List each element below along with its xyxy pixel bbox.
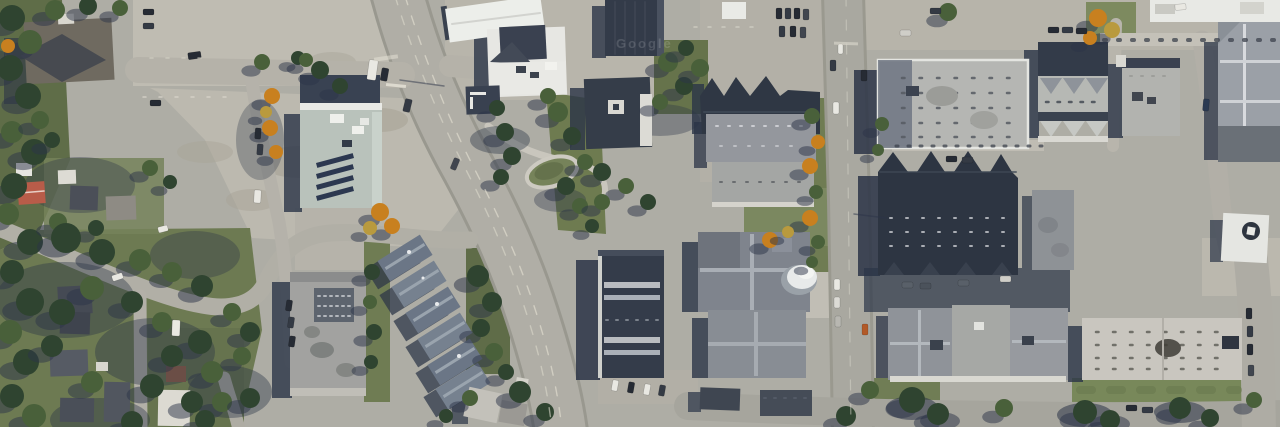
building-roof bbox=[952, 305, 1010, 379]
building-roof bbox=[970, 111, 998, 129]
tree bbox=[498, 364, 514, 380]
tree bbox=[482, 292, 502, 312]
tree bbox=[540, 88, 556, 104]
vehicle bbox=[143, 9, 154, 15]
tree bbox=[129, 249, 151, 271]
building-roof bbox=[878, 60, 912, 148]
tree bbox=[371, 203, 389, 221]
tree bbox=[0, 260, 24, 284]
tree bbox=[188, 330, 212, 354]
tree bbox=[485, 343, 503, 361]
tree bbox=[269, 145, 283, 159]
vehicle bbox=[962, 157, 973, 163]
tree bbox=[1246, 392, 1262, 408]
tree bbox=[652, 94, 668, 110]
vehicle bbox=[1246, 308, 1252, 319]
vehicle bbox=[946, 156, 957, 162]
tree bbox=[223, 303, 241, 321]
tree bbox=[1169, 397, 1191, 419]
tree bbox=[811, 135, 825, 149]
tree bbox=[163, 175, 177, 189]
tree bbox=[593, 163, 611, 181]
tree bbox=[311, 61, 329, 79]
vehicle bbox=[833, 102, 839, 114]
vehicle bbox=[150, 100, 161, 106]
west-side-street bbox=[138, 70, 402, 75]
building-roof bbox=[290, 388, 366, 396]
building-roof bbox=[435, 302, 439, 306]
tree-shadow bbox=[287, 64, 304, 74]
building-roof bbox=[1246, 226, 1255, 235]
vehicle bbox=[838, 44, 843, 54]
building-roof bbox=[1220, 100, 1280, 103]
tree bbox=[41, 335, 63, 357]
cast-shadow bbox=[1022, 196, 1033, 268]
building-roof bbox=[1155, 4, 1175, 14]
tree bbox=[509, 381, 531, 403]
building-roof bbox=[457, 354, 461, 358]
tree bbox=[462, 390, 478, 406]
building-roof bbox=[530, 72, 539, 78]
tree bbox=[806, 256, 818, 268]
building-roof bbox=[598, 250, 664, 256]
building-roof bbox=[698, 232, 740, 268]
tree bbox=[1, 39, 15, 53]
building-roof bbox=[604, 295, 660, 300]
building-roof bbox=[1122, 58, 1180, 68]
tree bbox=[142, 160, 158, 176]
tree bbox=[811, 235, 825, 249]
vehicle bbox=[172, 320, 181, 336]
vehicle bbox=[1248, 365, 1254, 376]
cast-shadow bbox=[1068, 326, 1083, 382]
tree bbox=[88, 220, 104, 236]
tree bbox=[363, 295, 377, 309]
tree bbox=[489, 100, 505, 116]
tree bbox=[264, 88, 280, 104]
tree bbox=[678, 40, 694, 56]
building-roof bbox=[407, 250, 411, 254]
tree bbox=[152, 312, 172, 332]
building-roof bbox=[1218, 126, 1280, 162]
building-roof bbox=[304, 326, 320, 338]
vehicle bbox=[794, 8, 800, 19]
tree-shadow bbox=[770, 237, 784, 245]
building-roof bbox=[640, 94, 652, 146]
vehicle bbox=[834, 297, 840, 308]
tree bbox=[49, 299, 75, 325]
cast-shadow bbox=[854, 70, 880, 154]
building-roof bbox=[106, 195, 137, 220]
building-roof bbox=[1162, 318, 1164, 380]
building-roof bbox=[1132, 92, 1143, 101]
tree bbox=[640, 194, 656, 210]
cast-shadow bbox=[692, 318, 709, 378]
building-roof bbox=[516, 66, 526, 73]
tree bbox=[804, 108, 820, 124]
tree-shadow bbox=[863, 128, 880, 138]
building-roof bbox=[96, 362, 108, 371]
tall-apartment-roof bbox=[598, 250, 664, 378]
vehicle bbox=[958, 280, 969, 286]
tree-shadow bbox=[151, 186, 168, 196]
watermark: Google bbox=[616, 36, 673, 51]
tree bbox=[782, 226, 794, 238]
tree bbox=[363, 221, 377, 235]
tree bbox=[691, 59, 709, 77]
tree bbox=[1089, 9, 1107, 27]
building-roof bbox=[604, 282, 660, 288]
satellite-map-canvas[interactable]: Google bbox=[0, 0, 1280, 427]
tree bbox=[18, 30, 42, 54]
tree bbox=[809, 185, 823, 199]
cast-shadow bbox=[576, 260, 600, 380]
tree bbox=[472, 319, 490, 337]
ground-patch bbox=[177, 141, 233, 163]
tree bbox=[577, 154, 593, 170]
building-roof bbox=[1010, 308, 1068, 380]
tree bbox=[899, 387, 925, 413]
vehicle bbox=[900, 30, 911, 36]
vehicle bbox=[257, 144, 264, 155]
vehicle bbox=[800, 27, 806, 38]
tree-shadow bbox=[351, 232, 368, 242]
cast-shadow bbox=[284, 114, 302, 212]
vehicle bbox=[835, 316, 841, 327]
building-roof bbox=[60, 398, 94, 423]
building-roof bbox=[310, 342, 334, 358]
building-roof bbox=[1022, 336, 1034, 345]
tree bbox=[15, 83, 41, 109]
tree-shadow bbox=[352, 366, 369, 376]
tree bbox=[191, 275, 213, 297]
building-roof bbox=[1220, 60, 1280, 63]
tree bbox=[1104, 22, 1120, 38]
tree bbox=[44, 132, 60, 148]
tree bbox=[233, 347, 251, 365]
vehicle bbox=[143, 23, 154, 29]
tree bbox=[364, 264, 380, 280]
building-roof bbox=[372, 112, 382, 206]
vehicle bbox=[1126, 405, 1137, 411]
building-roof bbox=[754, 312, 758, 376]
building-roof bbox=[890, 376, 1066, 382]
vehicle bbox=[785, 8, 791, 19]
vehicle bbox=[920, 283, 931, 289]
tree bbox=[563, 127, 581, 145]
cast-shadow bbox=[1108, 64, 1123, 138]
tree bbox=[140, 374, 164, 398]
vehicle bbox=[779, 26, 785, 37]
imagery-watermark: Google bbox=[616, 36, 673, 51]
building-roof bbox=[604, 337, 660, 343]
tree bbox=[1073, 400, 1097, 424]
building-roof bbox=[604, 350, 660, 355]
building-roof bbox=[1222, 336, 1239, 349]
vehicle bbox=[288, 336, 295, 348]
tree-shadow bbox=[797, 196, 814, 206]
cast-shadow bbox=[876, 316, 889, 378]
tree bbox=[439, 409, 453, 423]
vehicle bbox=[1048, 27, 1059, 33]
vehicle bbox=[285, 300, 292, 312]
vehicle bbox=[1175, 4, 1186, 11]
tree bbox=[262, 120, 278, 136]
tree bbox=[1201, 409, 1219, 427]
building-roof bbox=[598, 250, 602, 378]
vehicle bbox=[861, 70, 867, 81]
vehicle bbox=[1247, 326, 1253, 337]
building-roof bbox=[352, 126, 364, 134]
vehicle bbox=[255, 128, 262, 139]
tree-shadow bbox=[799, 146, 816, 156]
vehicle bbox=[1076, 28, 1087, 34]
tree bbox=[585, 219, 599, 233]
building-roof bbox=[330, 114, 344, 123]
building-roof bbox=[1240, 2, 1264, 14]
tree bbox=[802, 158, 818, 174]
building-roof bbox=[918, 310, 921, 378]
vehicle bbox=[902, 282, 913, 288]
building-roof bbox=[360, 118, 369, 125]
building-roof bbox=[926, 86, 958, 106]
tree bbox=[384, 218, 400, 234]
building-roof bbox=[1038, 112, 1108, 121]
building-roof bbox=[760, 390, 812, 416]
tree bbox=[112, 0, 128, 16]
tree bbox=[536, 403, 554, 421]
tree bbox=[618, 178, 634, 194]
tree bbox=[45, 0, 65, 20]
tree-shadow bbox=[799, 246, 816, 256]
building-roof bbox=[470, 92, 486, 95]
building-roof bbox=[1147, 97, 1156, 104]
building-roof bbox=[1012, 340, 1066, 343]
building-roof bbox=[1051, 243, 1069, 257]
building-roof bbox=[58, 170, 76, 185]
building-roof bbox=[613, 104, 619, 110]
tree bbox=[254, 54, 270, 70]
tree bbox=[332, 78, 348, 94]
tree-shadow bbox=[1071, 42, 1088, 52]
tree bbox=[0, 5, 25, 31]
building-roof bbox=[342, 140, 352, 147]
tree-shadow bbox=[351, 306, 368, 316]
tree bbox=[81, 371, 103, 393]
vehicle bbox=[776, 8, 782, 19]
tree bbox=[0, 384, 24, 408]
tree bbox=[493, 169, 509, 185]
tree-shadow bbox=[573, 230, 590, 240]
tree bbox=[503, 147, 521, 165]
tree bbox=[927, 403, 949, 425]
vehicle bbox=[790, 26, 796, 37]
building-roof bbox=[1155, 339, 1181, 357]
tree bbox=[467, 265, 489, 287]
tree bbox=[594, 194, 610, 210]
tree bbox=[548, 102, 568, 122]
tree-shadow bbox=[248, 117, 262, 125]
aerial-imagery: Google bbox=[0, 0, 1280, 427]
vehicle bbox=[830, 60, 836, 71]
vehicle bbox=[803, 9, 809, 20]
tree bbox=[240, 388, 260, 408]
tree bbox=[80, 276, 104, 300]
tree bbox=[201, 361, 223, 383]
tree bbox=[16, 288, 44, 316]
cast-shadow bbox=[858, 176, 880, 276]
building-roof bbox=[1116, 55, 1126, 67]
tree bbox=[364, 355, 378, 369]
building-roof bbox=[470, 97, 473, 109]
tree bbox=[366, 324, 382, 340]
vehicle bbox=[1062, 27, 1073, 33]
tree bbox=[31, 111, 49, 129]
tree bbox=[240, 322, 260, 342]
building-roof bbox=[700, 387, 741, 410]
cast-shadow bbox=[592, 6, 606, 58]
vehicle bbox=[1142, 407, 1153, 413]
tree bbox=[939, 3, 957, 21]
tree bbox=[836, 406, 856, 426]
building-roof bbox=[722, 2, 746, 19]
tree bbox=[51, 223, 81, 253]
tree-shadow bbox=[860, 155, 874, 163]
vehicle bbox=[1202, 99, 1209, 111]
building-roof bbox=[974, 322, 984, 330]
tree bbox=[496, 123, 514, 141]
cast-shadow bbox=[688, 392, 701, 412]
tree-shadow bbox=[257, 156, 274, 166]
vehicle bbox=[1247, 344, 1253, 355]
building-roof bbox=[1038, 136, 1108, 142]
tree bbox=[995, 399, 1013, 417]
tree bbox=[557, 177, 575, 195]
building-roof bbox=[545, 62, 557, 70]
vehicle bbox=[930, 8, 941, 14]
building-roof bbox=[930, 340, 943, 350]
vehicle bbox=[1000, 276, 1011, 282]
vehicle bbox=[287, 317, 294, 329]
building-roof bbox=[906, 86, 919, 96]
tree bbox=[89, 239, 115, 265]
tree bbox=[260, 106, 272, 118]
tree bbox=[161, 345, 183, 367]
tree bbox=[875, 117, 889, 131]
tree bbox=[299, 53, 313, 67]
tree bbox=[162, 262, 182, 282]
tree bbox=[802, 210, 818, 226]
building-roof bbox=[70, 186, 99, 211]
tree bbox=[22, 404, 46, 427]
white-building-logo bbox=[1221, 213, 1269, 263]
tree-shadow bbox=[794, 267, 808, 275]
vehicle bbox=[254, 190, 262, 203]
cast-shadow bbox=[682, 242, 699, 312]
building-roof bbox=[1038, 217, 1058, 233]
vehicle bbox=[834, 279, 840, 290]
building-roof bbox=[422, 277, 425, 280]
tree bbox=[861, 381, 879, 399]
tree bbox=[1, 173, 27, 199]
tree bbox=[121, 291, 143, 313]
tree bbox=[872, 144, 884, 156]
vehicle bbox=[862, 324, 868, 335]
building-roof bbox=[300, 103, 382, 111]
